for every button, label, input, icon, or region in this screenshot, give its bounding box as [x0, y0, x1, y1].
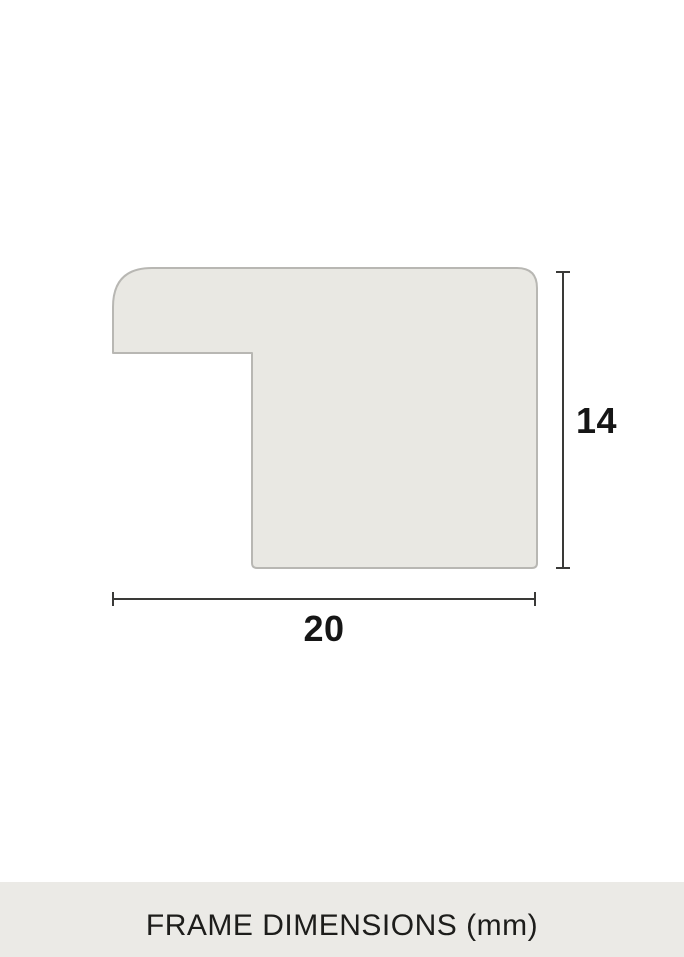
frame-profile-shape: [113, 268, 537, 568]
footer-caption-bar: FRAME DIMENSIONS (mm): [0, 882, 684, 957]
width-dimension-label: 20: [284, 611, 364, 647]
height-dimension-label: 14: [576, 403, 617, 439]
footer-caption: FRAME DIMENSIONS (mm): [146, 911, 538, 941]
width-dimension-line: [113, 592, 535, 606]
profile-diagram-canvas: [0, 0, 684, 882]
frame-dimension-diagram: 14 20 FRAME DIMENSIONS (mm): [0, 0, 684, 957]
height-dimension-line: [556, 272, 570, 568]
